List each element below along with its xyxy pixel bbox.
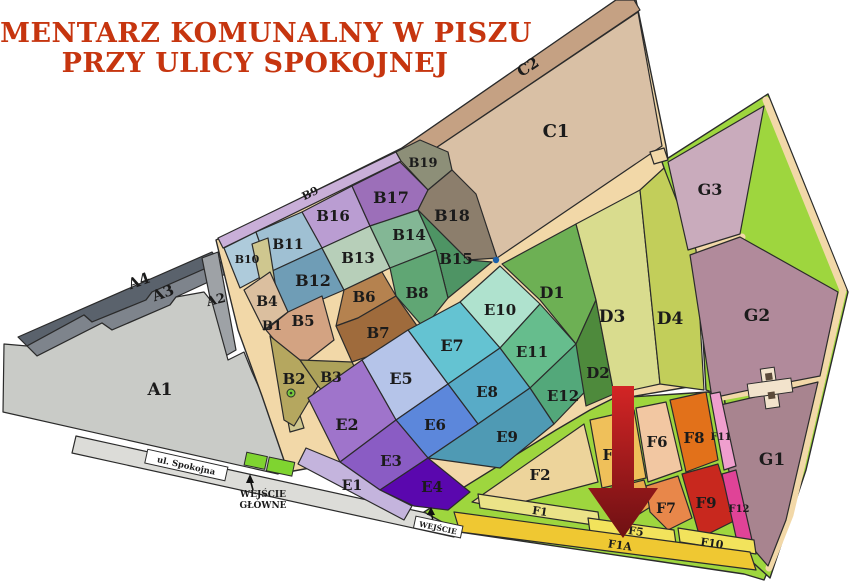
section-B1-label: B1: [262, 319, 282, 334]
section-B6-label: B6: [352, 288, 375, 306]
section-E12-label: E12: [547, 387, 579, 405]
water-point-marker: [493, 257, 499, 263]
section-F8-label: F8: [683, 429, 704, 447]
section-E5-label: E5: [389, 369, 412, 388]
cemetery-map: A1 A2 A3 A4 B1 B2 B3 B4 B5 B6 B7 B8 B9 B…: [0, 0, 852, 584]
section-E7-label: E7: [440, 336, 463, 355]
section-A1-label: A1: [146, 380, 172, 400]
page-title-line1: CMENTARZ KOMUNALNY W PISZU: [0, 18, 532, 49]
section-B3-label: B3: [320, 370, 342, 386]
section-E3-label: E3: [380, 452, 402, 470]
section-E8-label: E8: [476, 383, 498, 401]
section-E1-label: E1: [342, 478, 362, 494]
entrance-point-marker-center: [290, 392, 293, 395]
section-B13-label: B13: [341, 249, 375, 267]
section-E10-label: E10: [484, 301, 516, 319]
section-D1-label: D1: [539, 283, 564, 302]
section-F9-label: F9: [695, 494, 716, 512]
section-F1-label: F1: [531, 504, 548, 519]
section-G2-label: G2: [744, 306, 770, 326]
section-D2-label: D2: [586, 364, 609, 382]
section-B2-label: B2: [282, 370, 305, 388]
section-B15-label: B15: [439, 250, 473, 268]
section-B12-label: B12: [295, 271, 331, 290]
main-entrance-label-line2: GŁÓWNE: [239, 499, 286, 511]
section-B17-label: B17: [373, 188, 409, 207]
cemetery-map-page: A1 A2 A3 A4 B1 B2 B3 B4 B5 B6 B7 B8 B9 B…: [0, 0, 852, 584]
main-entrance-label-line1: WEJŚCIE: [239, 488, 286, 500]
section-B19-label: B19: [408, 156, 437, 171]
section-B18-label: B18: [434, 206, 470, 225]
section-D3-label: D3: [599, 307, 626, 327]
section-F7-label: F7: [656, 501, 676, 517]
section-G3-label: G3: [698, 180, 723, 199]
section-D4-label: D4: [657, 309, 684, 329]
section-F12-label: F12: [728, 504, 749, 515]
section-F6-label: F6: [646, 433, 667, 451]
section-B8-label: B8: [405, 284, 428, 302]
section-E2-label: E2: [335, 415, 358, 434]
section-B5-label: B5: [291, 312, 314, 330]
section-B10-label: B10: [235, 253, 260, 266]
section-E11-label: E11: [516, 343, 548, 361]
section-B7-label: B7: [366, 324, 389, 342]
section-F2-label: F2: [529, 466, 550, 484]
section-B11-label: B11: [272, 237, 303, 253]
section-E9-label: E9: [496, 428, 518, 446]
section-G1-label: G1: [759, 450, 785, 470]
section-F11-label: F11: [710, 432, 731, 443]
section-E6-label: E6: [424, 416, 446, 434]
section-B4-label: B4: [256, 294, 278, 310]
page-title-line2: PRZY ULICY SPOKOJNEJ: [62, 48, 449, 79]
section-B14-label: B14: [392, 226, 426, 244]
section-B16-label: B16: [316, 207, 350, 225]
section-E4-label: E4: [421, 478, 443, 496]
section-C1-label: C1: [543, 121, 570, 142]
